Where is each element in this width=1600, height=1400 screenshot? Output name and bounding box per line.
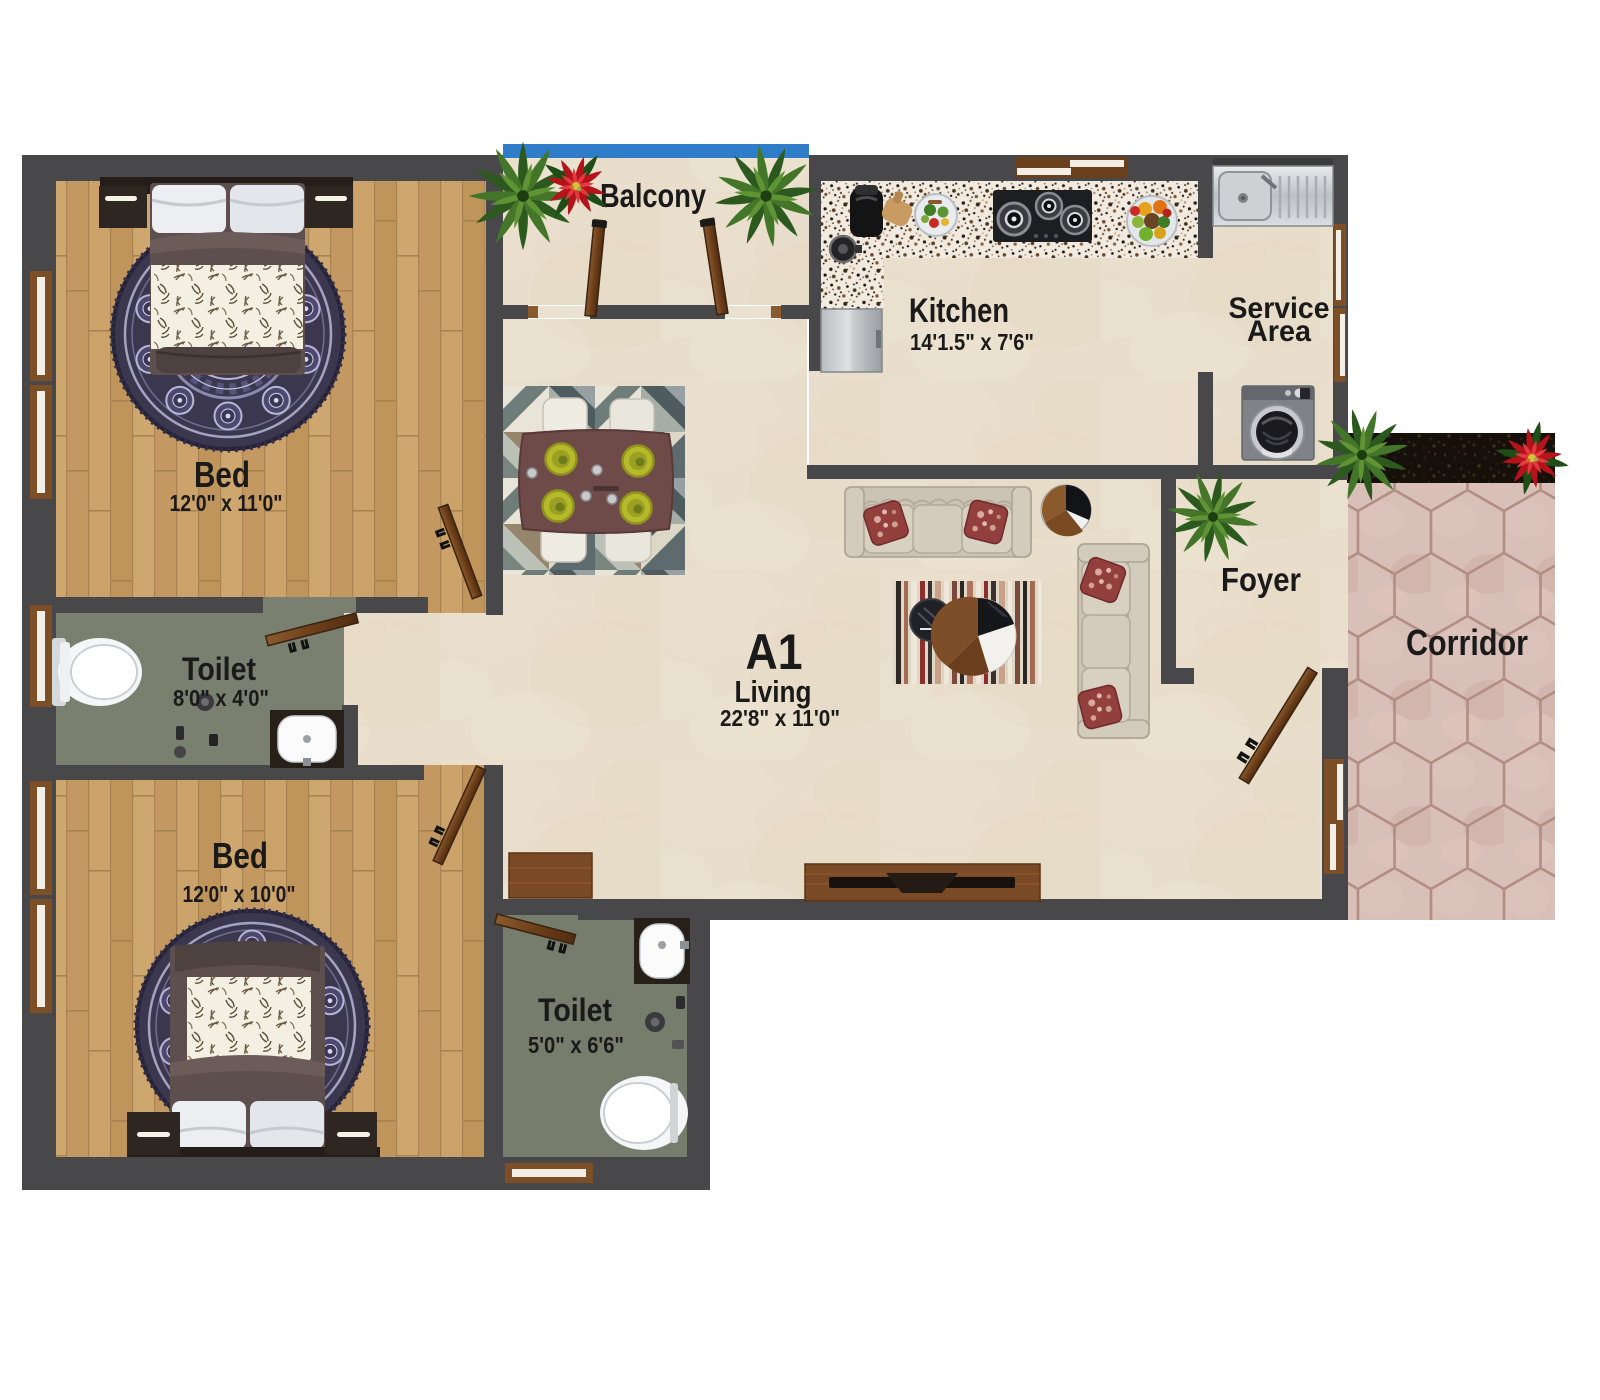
svg-text:Corridor: Corridor: [1406, 622, 1528, 663]
svg-text:Bed: Bed: [212, 835, 268, 876]
svg-text:Bed: Bed: [194, 454, 250, 495]
svg-text:Area: Area: [1247, 315, 1311, 348]
svg-text:12'0" x 11'0": 12'0" x 11'0": [170, 490, 283, 516]
svg-text:A1: A1: [746, 624, 803, 680]
svg-text:12'0" x 10'0": 12'0" x 10'0": [183, 881, 296, 907]
svg-text:Living: Living: [735, 674, 812, 709]
svg-text:Toilet: Toilet: [182, 651, 256, 687]
svg-text:8'0" x 4'0": 8'0" x 4'0": [173, 685, 269, 711]
svg-text:14'1.5" x 7'6": 14'1.5" x 7'6": [910, 329, 1034, 355]
svg-text:Toilet: Toilet: [538, 992, 612, 1028]
svg-text:Kitchen: Kitchen: [909, 292, 1009, 330]
svg-text:Foyer: Foyer: [1221, 561, 1301, 598]
svg-text:22'8" x 11'0": 22'8" x 11'0": [720, 705, 840, 731]
svg-text:5'0" x 6'6": 5'0" x 6'6": [528, 1032, 624, 1058]
svg-text:Balcony: Balcony: [600, 177, 707, 214]
